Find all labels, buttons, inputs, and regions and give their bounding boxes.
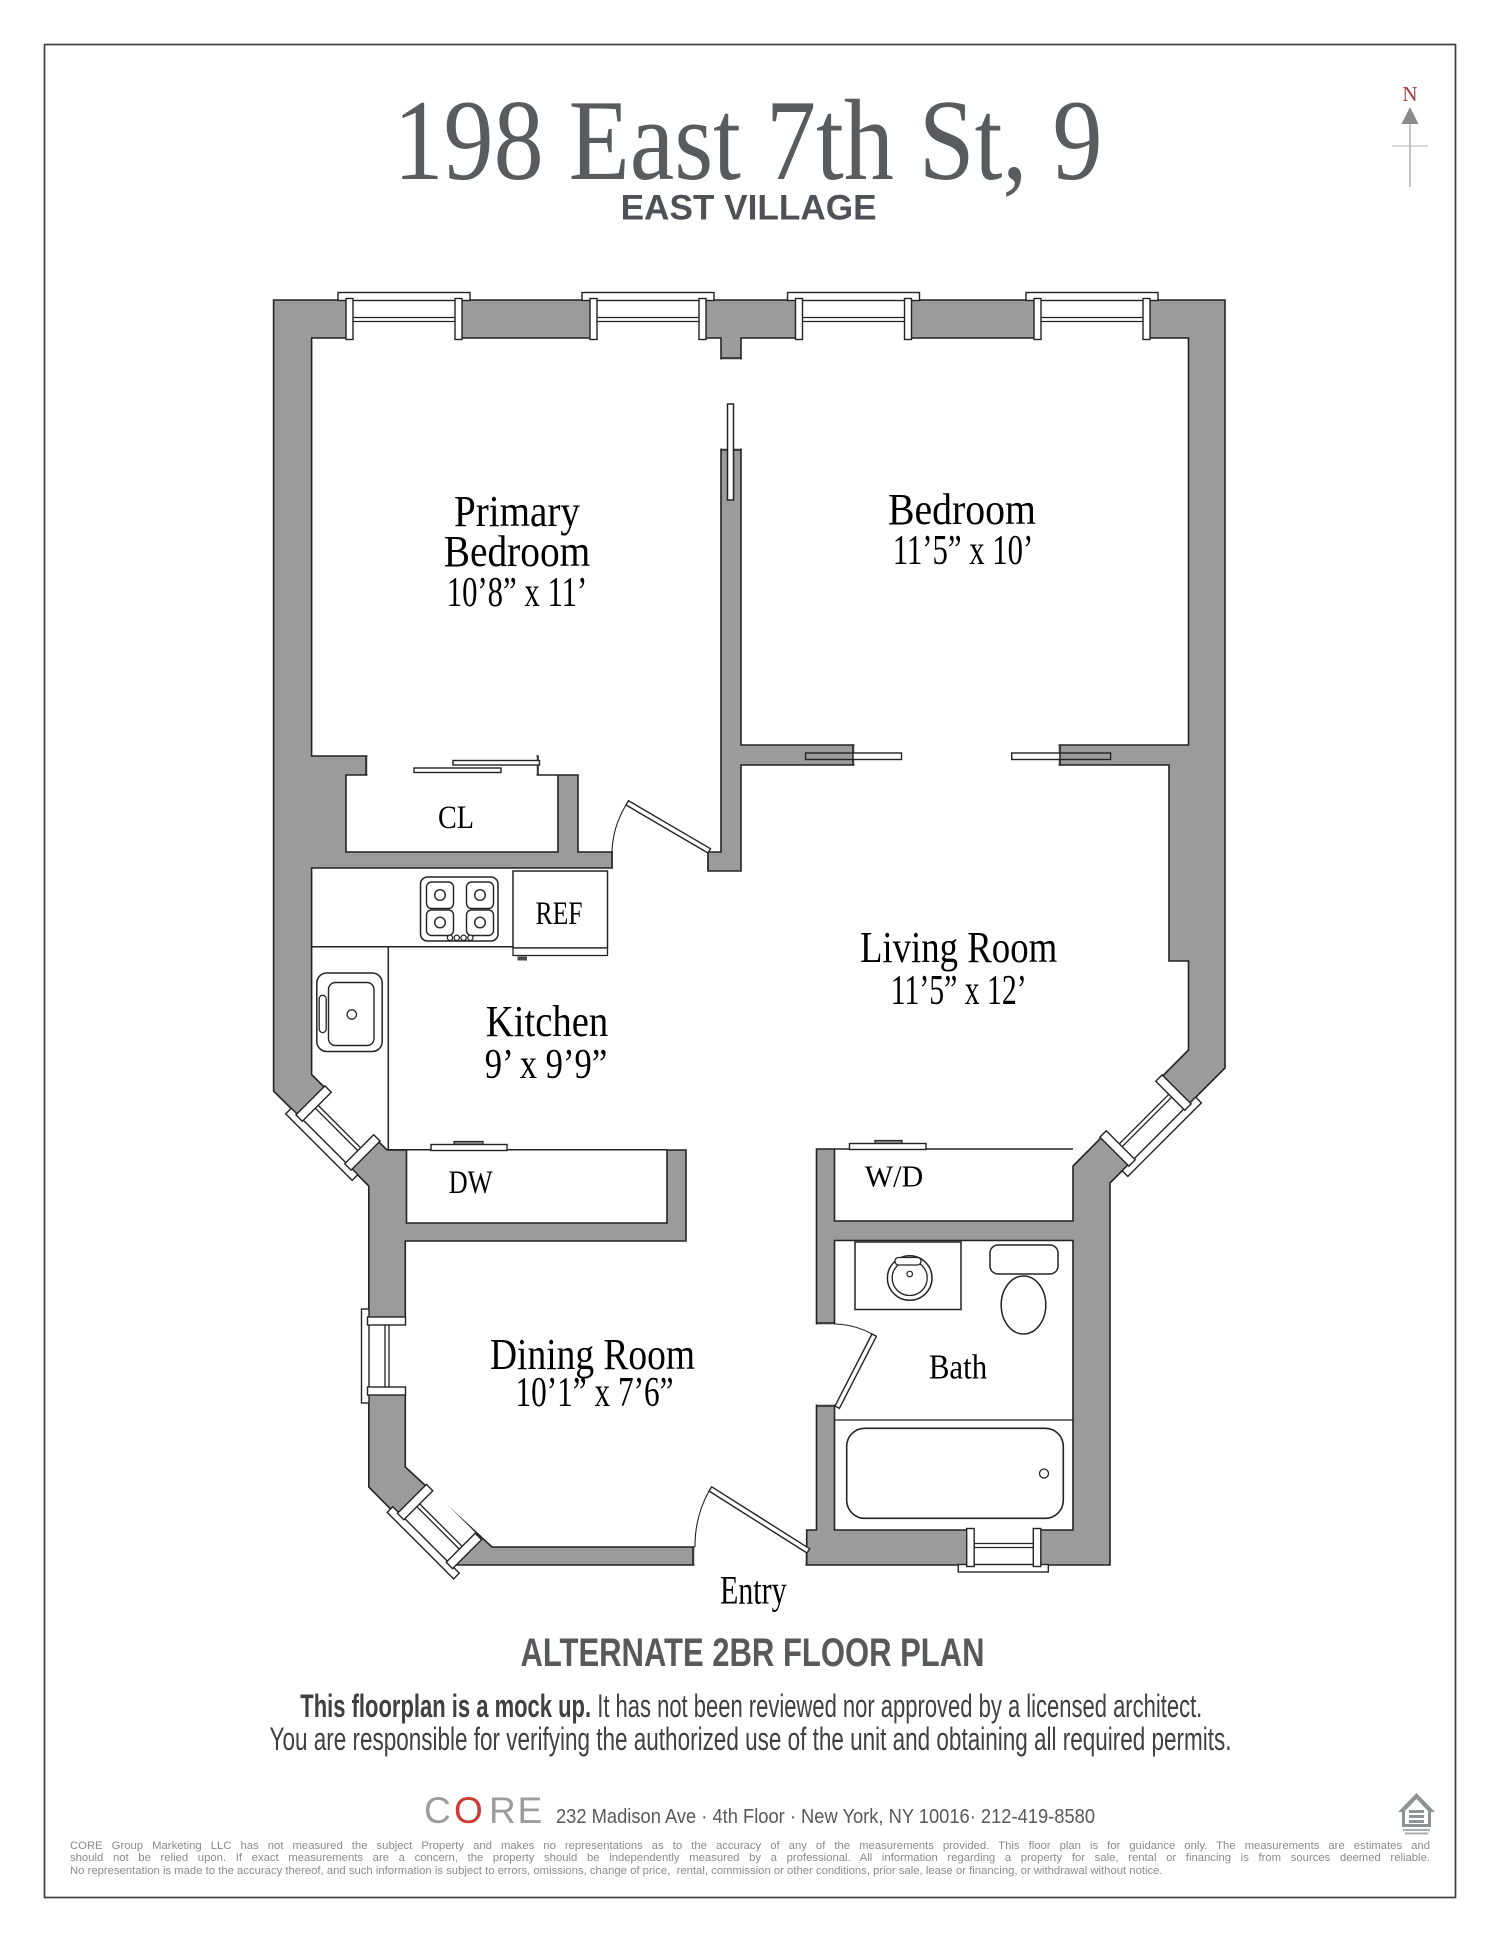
svg-text:232 Madison Ave · 4th Floor ·: 232 Madison Ave · 4th Floor · New York, … (556, 1806, 1095, 1828)
svg-text:Entry: Entry (720, 1567, 787, 1612)
svg-text:C: C (424, 1790, 451, 1831)
svg-text:CL: CL (438, 800, 474, 836)
svg-text:REF: REF (536, 896, 583, 932)
svg-text:This floorplan is a mock up. I: This floorplan is a mock up. It has not … (300, 1688, 1202, 1724)
svg-text:O: O (454, 1790, 483, 1831)
svg-text:ALTERNATE 2BR FLOOR PLAN: ALTERNATE 2BR FLOOR PLAN (521, 1631, 985, 1675)
svg-text:Bath: Bath (929, 1348, 988, 1387)
svg-text:11’5” x 12’: 11’5” x 12’ (891, 968, 1027, 1014)
svg-text:Living Room: Living Room (860, 923, 1057, 972)
svg-text:Bedroom: Bedroom (444, 527, 591, 576)
svg-text:198 East 7th St, 9: 198 East 7th St, 9 (394, 77, 1103, 204)
svg-text:11’5” x 10’: 11’5” x 10’ (893, 528, 1034, 574)
svg-text:N: N (1402, 82, 1417, 106)
svg-text:You are responsible for verify: You are responsible for verifying the au… (270, 1721, 1232, 1757)
svg-text:10’1” x 7’6”: 10’1” x 7’6” (516, 1370, 674, 1416)
svg-text:9’ x 9’9”: 9’ x 9’9” (485, 1042, 607, 1088)
svg-text:W/D: W/D (865, 1159, 924, 1194)
svg-text:Bedroom: Bedroom (888, 485, 1036, 534)
svg-text:R: R (489, 1790, 516, 1831)
svg-text:E: E (518, 1790, 543, 1831)
svg-text:10’8” x 11’: 10’8” x 11’ (447, 570, 588, 616)
svg-text:DW: DW (449, 1165, 494, 1201)
svg-text:EAST VILLAGE: EAST VILLAGE (621, 188, 877, 227)
svg-text:Kitchen: Kitchen (486, 997, 609, 1046)
